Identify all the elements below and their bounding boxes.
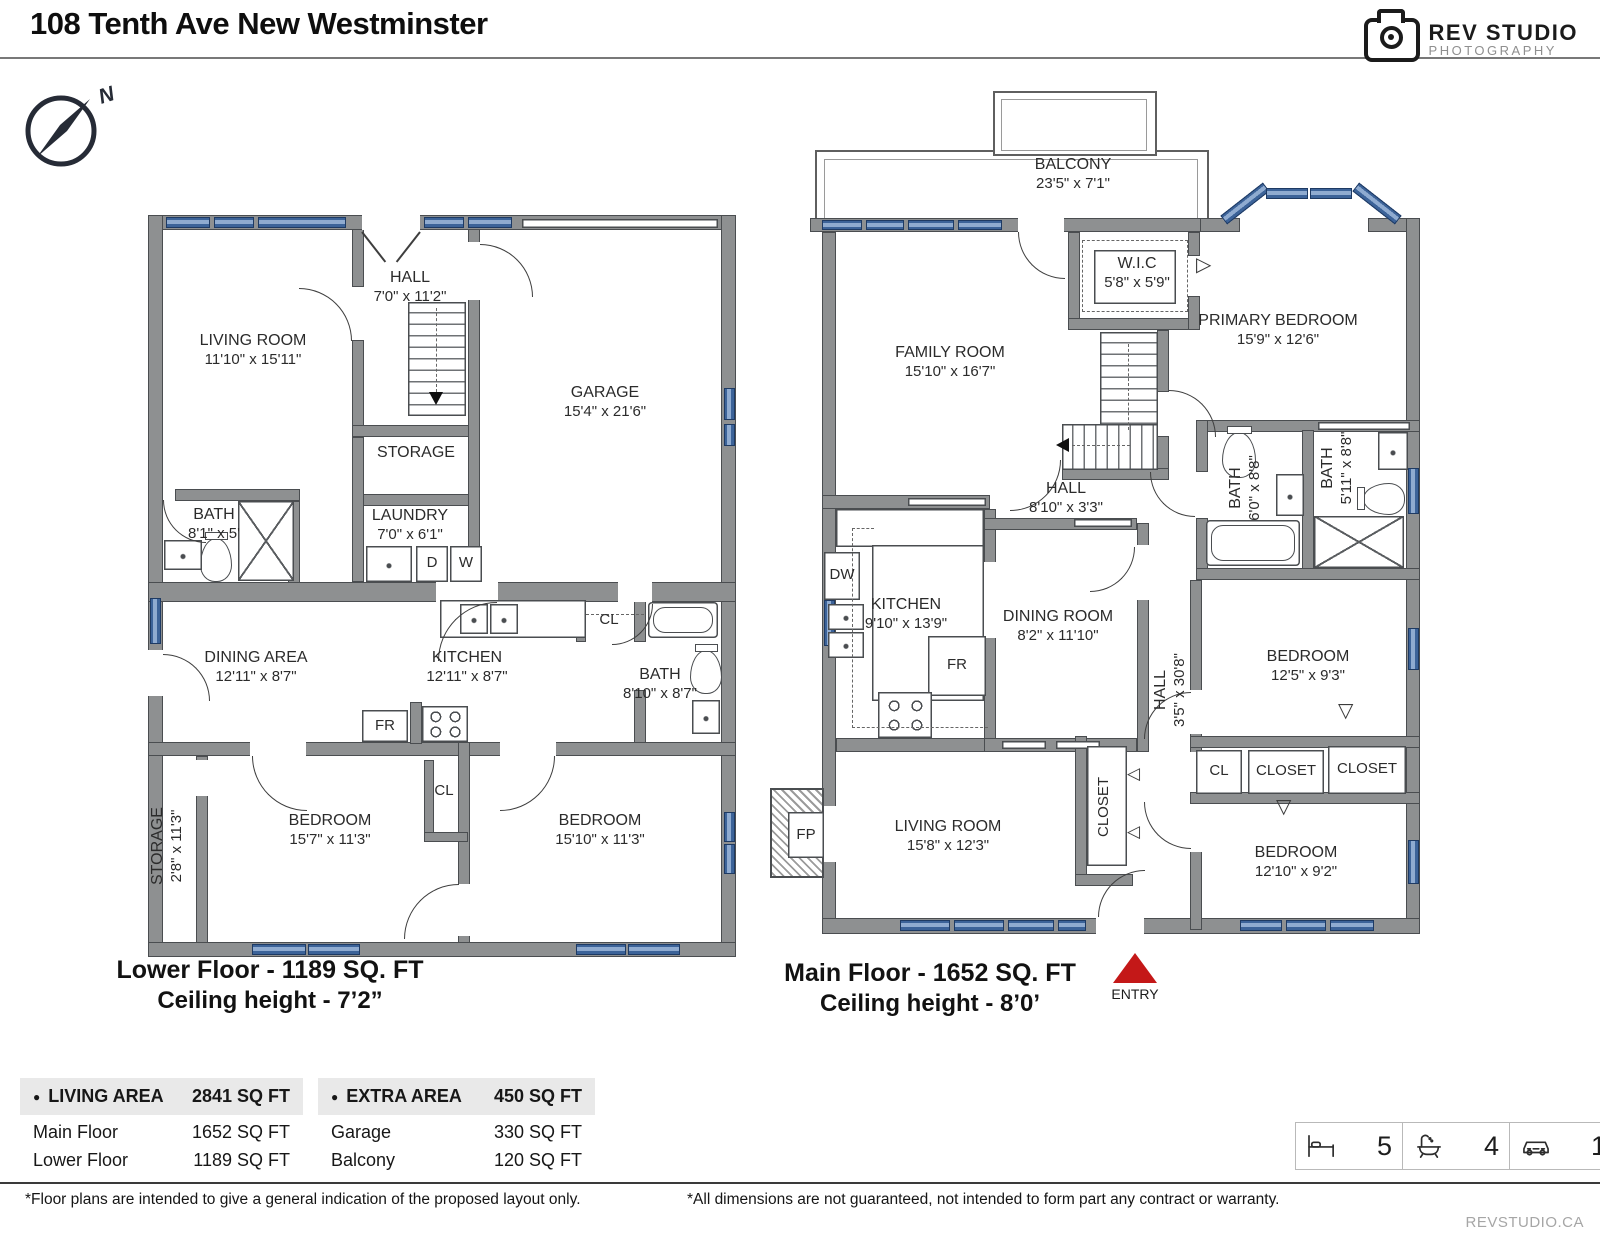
bullet-icon: ● [331, 1090, 338, 1104]
shower [1314, 516, 1404, 568]
room-label-primary-bedroom: PRIMARY BEDROOM15'9" x 12'6" [1170, 312, 1386, 349]
bathtub [648, 602, 718, 638]
window [1408, 628, 1419, 670]
window [1058, 920, 1086, 931]
stove [878, 692, 932, 738]
pass-through [908, 498, 986, 506]
extra-area-header: ● EXTRA AREA 450 SQ FT [318, 1078, 595, 1115]
car-icon [1520, 1133, 1552, 1159]
bay-window [1266, 188, 1308, 199]
wall [352, 494, 480, 506]
table-row: Balcony 120 SQ FT [318, 1143, 595, 1171]
door-opening [1137, 545, 1149, 600]
fireplace-label: FP [788, 826, 824, 844]
door-opening [148, 650, 163, 696]
counter-dash [852, 528, 874, 529]
disclaimer-left: *Floor plans are intended to give a gene… [25, 1191, 581, 1209]
door-opening [436, 582, 498, 602]
window [958, 220, 1002, 230]
room-label-hall-long: HALL3'5" x 30'8" [1152, 620, 1208, 760]
room-label-kitchen: KITCHEN12'11" x 8'7" [377, 649, 557, 686]
room-label-dining-area: DINING AREA12'11" x 8'7" [166, 649, 346, 686]
rev-studio-logo: REV STUDIO PHOTOGRAPHY [1364, 8, 1578, 62]
floor-plan-page: 108 Tenth Ave New Westminster REV STUDIO… [0, 0, 1600, 1239]
page-title: 108 Tenth Ave New Westminster [30, 6, 488, 42]
room-label-wic: W.I.C5'8" x 5'9" [1085, 255, 1189, 292]
door-triangle-icon: ▽ [1276, 796, 1291, 816]
stairs-path [1072, 445, 1130, 446]
camera-bump [1377, 9, 1405, 23]
wall [424, 832, 468, 842]
website-label: REVSTUDIO.CA [1465, 1214, 1584, 1231]
room-label-living-room: LIVING ROOM15'8" x 12'3" [858, 818, 1038, 855]
stairs [1100, 332, 1158, 426]
table-row: Main Floor 1652 SQ FT [20, 1115, 303, 1143]
window [576, 944, 626, 955]
window [1008, 920, 1054, 931]
door-opening [362, 215, 420, 230]
bath-icon [1413, 1133, 1445, 1159]
parking-stat: 1 [1510, 1123, 1600, 1169]
stairs [1062, 424, 1158, 470]
counter-dash [852, 727, 988, 728]
door-opening [1157, 392, 1169, 436]
window [1240, 920, 1282, 931]
stairs-down-arrow-icon [429, 392, 443, 405]
row-value: 1652 SQ FT [192, 1122, 290, 1143]
room-label-bedroom: BEDROOM12'10" x 9'2" [1206, 844, 1386, 881]
laundry-sink [366, 546, 412, 582]
row-label: Garage [331, 1122, 391, 1143]
door-opening [618, 582, 652, 602]
row-value: 120 SQ FT [494, 1150, 582, 1171]
door-arc [1144, 802, 1191, 849]
closet-label: CLOSET [1248, 762, 1324, 780]
property-stats: 5 4 1 [1295, 1122, 1600, 1170]
wall [410, 702, 422, 744]
stairs-arrow-icon [1056, 438, 1069, 452]
living-area-header: ● LIVING AREA 2841 SQ FT [20, 1078, 303, 1115]
bed-icon [1306, 1133, 1338, 1159]
lower-floor-caption: Lower Floor - 1189 SQ. FTCeiling height … [85, 955, 455, 1016]
row-value: 1189 SQ FT [193, 1150, 290, 1171]
door-leaf [396, 231, 421, 262]
room-label-family-room: FAMILY ROOM15'10" x 16'7" [860, 344, 1040, 381]
door-opening [500, 742, 556, 756]
window [866, 220, 904, 230]
beds-stat: 5 [1296, 1123, 1403, 1169]
window [1408, 840, 1419, 884]
room-label-storage: STORAGE [352, 444, 480, 463]
closet-label: CLOSET [1328, 760, 1406, 778]
wall [352, 340, 364, 426]
wall [1157, 330, 1169, 392]
wall [836, 738, 990, 752]
room-label-living: LIVING ROOM11'10" x 15'11" [153, 332, 353, 369]
extra-area-table: ● EXTRA AREA 450 SQ FT Garage 330 SQ FT … [318, 1078, 595, 1171]
garage-door [522, 219, 718, 228]
parking-count: 1 [1591, 1131, 1600, 1162]
window [900, 920, 950, 931]
room-label-bath: BATH5'11" x 8'8" [1319, 418, 1377, 518]
room-label-bath: BATH6'0" x 8'8" [1227, 438, 1285, 538]
fridge-label: FR [928, 656, 986, 674]
window [908, 220, 954, 230]
closet-label: CL [1196, 762, 1242, 780]
door-triangle-icon: ▽ [1338, 700, 1353, 720]
window [724, 424, 735, 446]
door-opening [1190, 804, 1202, 852]
stairs-path [1128, 344, 1129, 430]
window [1286, 920, 1326, 931]
room-label-laundry: LAUNDRY7'0" x 6'1" [340, 507, 480, 544]
window [424, 217, 464, 228]
wall [424, 760, 434, 840]
toilet [200, 538, 232, 582]
camera-lens-dot [1388, 34, 1394, 40]
living-area-title: LIVING AREA [48, 1086, 192, 1107]
room-label-dining-room: DINING ROOM8'2" x 11'10" [968, 608, 1148, 645]
room-label-hall: HALL7'0" x 11'2" [340, 269, 480, 306]
window [468, 217, 512, 228]
door-arc [480, 244, 533, 297]
door-opening [1096, 918, 1144, 934]
fridge-label: FR [362, 717, 408, 735]
bathroom-sink [692, 700, 720, 734]
living-area-table: ● LIVING AREA 2841 SQ FT Main Floor 1652… [20, 1078, 303, 1171]
window [822, 220, 862, 230]
dishwasher-label: DW [824, 566, 860, 584]
washer-label: W [450, 554, 482, 572]
logo-name: REV STUDIO [1429, 21, 1578, 44]
row-value: 330 SQ FT [494, 1122, 582, 1143]
closet-label: CL [583, 611, 635, 629]
door-arc [1150, 472, 1195, 517]
camera-icon [1364, 18, 1420, 62]
room-label-bath: BATH8'1" x 5' [158, 506, 270, 543]
main-floor-caption: Main Floor - 1652 SQ. FTCeiling height -… [745, 958, 1115, 1019]
entry-arrow-icon [1113, 953, 1157, 983]
row-label: Lower Floor [33, 1150, 128, 1171]
bay-window [1310, 188, 1352, 199]
bullet-icon: ● [33, 1090, 40, 1104]
door-opening [458, 884, 470, 936]
door-arc [1090, 547, 1135, 592]
baths-stat: 4 [1403, 1123, 1510, 1169]
pass-through [1074, 519, 1132, 527]
wall [1075, 736, 1087, 886]
window [724, 844, 735, 874]
window [252, 944, 306, 955]
wall [1200, 218, 1240, 232]
bay-window [1220, 183, 1269, 225]
room-label-hall: HALL8'10" x 3'3" [996, 480, 1136, 517]
row-label: Balcony [331, 1150, 395, 1171]
fireplace-opening [822, 806, 836, 862]
disclaimer-right: *All dimensions are not guaranteed, not … [687, 1191, 1279, 1209]
wall [1068, 232, 1080, 330]
door-opening [250, 742, 306, 756]
wall [1157, 436, 1169, 472]
living-area-total: 2841 SQ FT [192, 1086, 290, 1107]
window [1408, 468, 1419, 514]
window [628, 944, 680, 955]
window [150, 598, 161, 644]
window [308, 944, 360, 955]
room-label-garage: GARAGE15'4" x 21'6" [515, 384, 695, 421]
window [258, 217, 346, 228]
window [724, 388, 735, 420]
door-triangle-icon: ◁ [1127, 824, 1140, 841]
room-label-storage-strip: STORAGE2'8" x 11'3" [149, 786, 205, 906]
extra-area-total: 450 SQ FT [494, 1086, 582, 1107]
room-label-bath: BATH8'10" x 8'7" [604, 666, 716, 703]
footer-divider [0, 1182, 1600, 1184]
row-label: Main Floor [33, 1122, 118, 1143]
table-row: Garage 330 SQ FT [318, 1115, 595, 1143]
stairs-path [436, 308, 437, 392]
window [1330, 920, 1374, 931]
stove [422, 706, 468, 742]
bathroom-sink [1378, 432, 1408, 470]
logo-subtitle: PHOTOGRAPHY [1429, 44, 1578, 58]
door-arc [500, 756, 555, 811]
door-leaf [361, 231, 386, 262]
bathroom-sink [164, 540, 202, 570]
extra-area-title: EXTRA AREA [346, 1086, 494, 1107]
beds-count: 5 [1377, 1131, 1392, 1162]
table-row: Lower Floor 1189 SQ FT [20, 1143, 303, 1171]
window [214, 217, 254, 228]
window [166, 217, 210, 228]
balcony-inner-line [1001, 99, 1147, 151]
door-arc [1018, 232, 1065, 279]
header-divider [0, 57, 1600, 59]
pass-through [1002, 741, 1046, 749]
dryer-label: D [416, 554, 448, 572]
door-arc [252, 756, 307, 811]
room-label-bedroom: BEDROOM15'10" x 11'3" [510, 812, 690, 849]
closet-label: CL [422, 782, 466, 800]
room-label-bedroom: BEDROOM12'5" x 9'3" [1218, 648, 1398, 685]
door-triangle-icon: ▷ [1196, 254, 1211, 274]
room-label-balcony: BALCONY23'5" x 7'1" [983, 156, 1163, 193]
door-triangle-icon: ◁ [1127, 766, 1140, 783]
window [954, 920, 1004, 931]
wall [1196, 568, 1420, 580]
door-arc [1169, 390, 1216, 437]
wall [148, 742, 736, 756]
door-opening [1018, 218, 1064, 232]
baths-count: 4 [1484, 1131, 1499, 1162]
window [724, 812, 735, 842]
wall [352, 425, 480, 437]
room-label-bedroom: BEDROOM15'7" x 11'3" [240, 812, 420, 849]
closet-label: CLOSET [1095, 752, 1119, 862]
kitchen-sink [828, 632, 864, 658]
door-arc [404, 884, 459, 939]
